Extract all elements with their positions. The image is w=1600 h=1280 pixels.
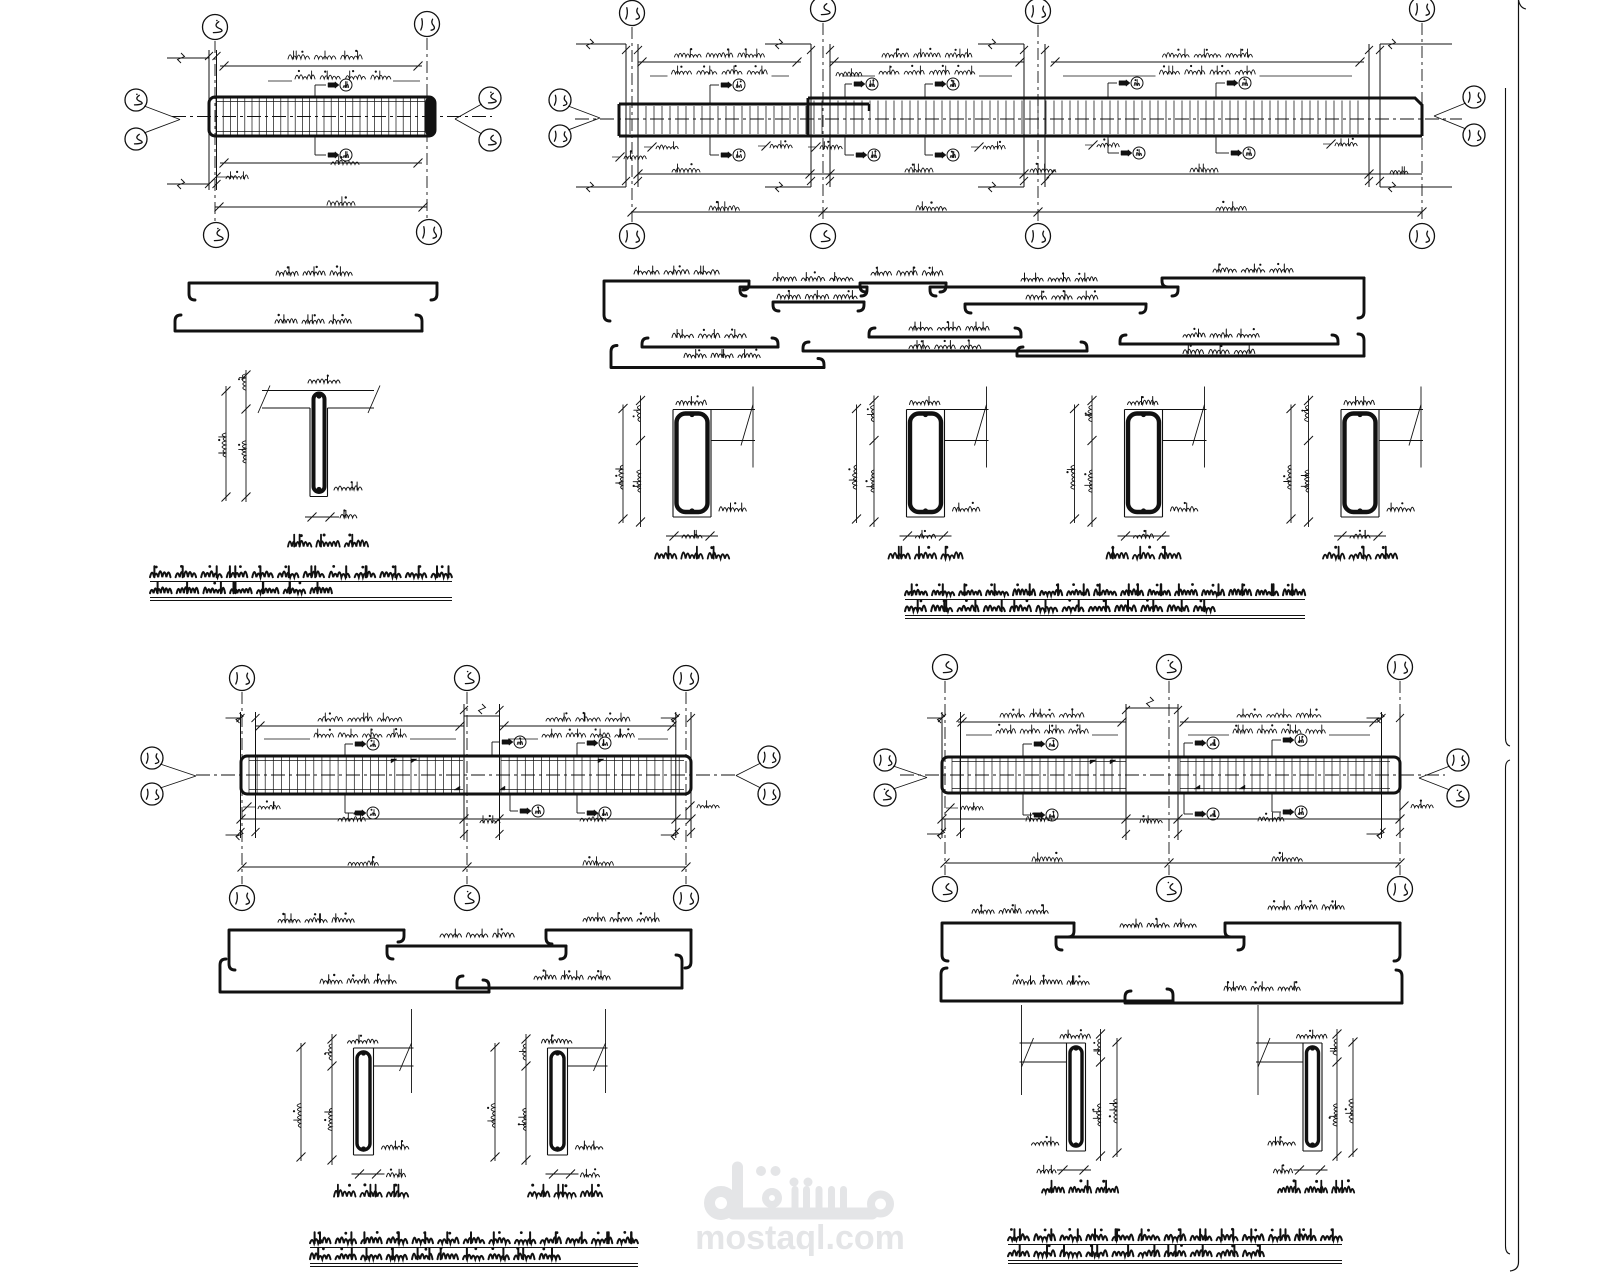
svg-text:mostaql.com: mostaql.com [695,1219,905,1257]
